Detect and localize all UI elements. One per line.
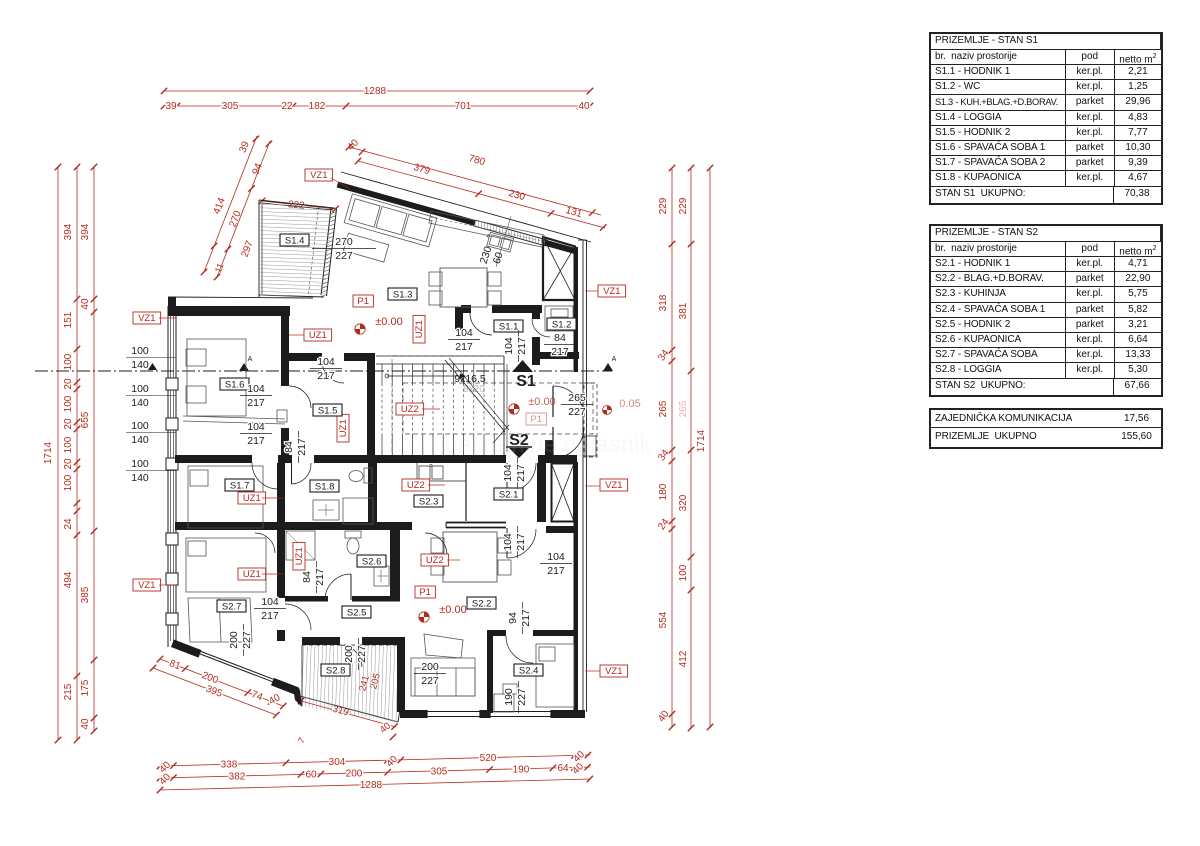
- svg-text:229: 229: [678, 197, 689, 214]
- svg-text:394: 394: [63, 223, 74, 240]
- svg-text:VZ1: VZ1: [603, 286, 620, 297]
- svg-text:217: 217: [516, 337, 528, 355]
- svg-text:S2.7: S2.7: [222, 602, 242, 613]
- svg-text:7: 7: [296, 736, 307, 745]
- svg-text:104: 104: [502, 533, 514, 551]
- svg-text:S2.5: S2.5: [347, 608, 367, 619]
- svg-text:100: 100: [63, 395, 74, 412]
- svg-text:217: 217: [455, 341, 473, 353]
- svg-text:S1.7: S1.7: [230, 481, 250, 492]
- svg-text:100: 100: [131, 383, 149, 395]
- svg-text:227: 227: [516, 688, 528, 706]
- svg-text:229: 229: [658, 197, 669, 214]
- svg-text:40: 40: [578, 101, 590, 112]
- svg-text:S1: S1: [516, 373, 536, 390]
- svg-text:655: 655: [80, 411, 91, 428]
- svg-text:39: 39: [165, 101, 177, 112]
- svg-text:UZ1: UZ1: [414, 320, 425, 338]
- svg-text:554: 554: [658, 611, 669, 628]
- svg-text:217: 217: [247, 435, 265, 447]
- svg-text:0.05: 0.05: [619, 398, 640, 410]
- svg-text:20: 20: [63, 378, 74, 390]
- svg-text:UZ2: UZ2: [426, 555, 444, 566]
- svg-text:140: 140: [131, 434, 149, 446]
- svg-text:217: 217: [515, 533, 527, 551]
- svg-text:338: 338: [221, 760, 238, 771]
- svg-text:100: 100: [131, 345, 149, 357]
- svg-text:395: 395: [204, 684, 224, 700]
- svg-text:S2.4: S2.4: [519, 666, 539, 677]
- svg-text:104: 104: [247, 421, 265, 433]
- svg-text:40: 40: [656, 708, 672, 724]
- svg-text:217: 217: [296, 438, 308, 456]
- svg-text:S1.8: S1.8: [315, 482, 335, 493]
- svg-text:100: 100: [63, 474, 74, 491]
- svg-text:780: 780: [467, 153, 486, 168]
- svg-text:nekretnine oglasnik: nekretnine oglasnik: [445, 431, 653, 458]
- svg-text:UZ1: UZ1: [309, 330, 327, 341]
- svg-text:VZ1: VZ1: [605, 480, 622, 491]
- svg-text:84: 84: [554, 332, 566, 344]
- svg-text:40: 40: [570, 761, 586, 777]
- svg-text:100: 100: [131, 458, 149, 470]
- svg-text:381: 381: [678, 302, 689, 319]
- svg-text:180: 180: [658, 483, 669, 500]
- svg-text:305: 305: [431, 766, 448, 777]
- svg-text:100: 100: [63, 436, 74, 453]
- svg-text:305: 305: [222, 101, 239, 112]
- svg-text:S2.1: S2.1: [499, 490, 519, 501]
- svg-text:217: 217: [314, 568, 326, 586]
- svg-text:VZ1: VZ1: [310, 170, 327, 181]
- svg-text:104: 104: [317, 356, 335, 368]
- svg-text:104: 104: [455, 327, 473, 339]
- svg-text:34: 34: [656, 347, 672, 363]
- svg-text:22: 22: [281, 101, 293, 112]
- svg-text:382: 382: [229, 772, 246, 783]
- svg-text:S2.8: S2.8: [326, 666, 346, 677]
- svg-text:8x20: 8x20: [463, 384, 485, 395]
- svg-text:VZ1: VZ1: [138, 580, 155, 591]
- svg-text:227: 227: [568, 406, 586, 418]
- svg-text:227: 227: [335, 250, 353, 262]
- svg-text:140: 140: [131, 359, 149, 371]
- svg-text:94: 94: [251, 162, 265, 177]
- svg-text:100: 100: [131, 420, 149, 432]
- svg-text:104: 104: [503, 337, 515, 355]
- svg-text:379: 379: [412, 162, 431, 177]
- svg-text:215: 215: [63, 683, 74, 700]
- svg-text:227: 227: [241, 631, 253, 649]
- svg-text:140: 140: [131, 472, 149, 484]
- svg-text:265: 265: [568, 392, 586, 404]
- svg-text:217: 217: [551, 346, 569, 358]
- svg-text:39: 39: [238, 140, 252, 155]
- svg-text:S2.3: S2.3: [419, 497, 439, 508]
- svg-text:20: 20: [63, 458, 74, 470]
- svg-text:84: 84: [301, 571, 313, 583]
- svg-text:24: 24: [63, 518, 74, 530]
- svg-text:217: 217: [317, 370, 335, 382]
- svg-text:UZ2: UZ2: [401, 404, 419, 415]
- svg-text:270: 270: [228, 209, 244, 229]
- svg-text:S1.4: S1.4: [285, 236, 305, 247]
- svg-text:217: 217: [247, 397, 265, 409]
- svg-text:217: 217: [520, 609, 532, 627]
- svg-text:140: 140: [131, 397, 149, 409]
- svg-text:±0.00: ±0.00: [528, 396, 555, 408]
- svg-text:81: 81: [168, 658, 183, 672]
- svg-text:VZ1: VZ1: [605, 666, 622, 677]
- svg-text:412: 412: [678, 650, 689, 667]
- svg-text:24: 24: [656, 516, 672, 532]
- svg-text:UZ1: UZ1: [243, 493, 261, 504]
- svg-text:1714: 1714: [43, 441, 54, 464]
- svg-text:UZ1: UZ1: [294, 547, 305, 565]
- svg-text:P1: P1: [357, 296, 369, 307]
- svg-text:P1: P1: [530, 414, 542, 425]
- svg-text:S1.1: S1.1: [499, 322, 519, 333]
- svg-text:S1.5: S1.5: [318, 406, 338, 417]
- svg-text:318: 318: [658, 294, 669, 311]
- svg-text:200: 200: [228, 631, 240, 649]
- svg-text:200: 200: [346, 769, 363, 780]
- svg-text:494: 494: [63, 571, 74, 588]
- svg-text:60: 60: [305, 770, 317, 781]
- svg-text:40: 40: [384, 754, 400, 770]
- svg-text:S1.3: S1.3: [393, 290, 413, 301]
- svg-text:A: A: [248, 356, 253, 363]
- svg-text:40: 40: [157, 771, 173, 787]
- svg-text:320: 320: [678, 494, 689, 511]
- svg-text:394: 394: [80, 223, 91, 240]
- svg-text:701: 701: [455, 101, 472, 112]
- svg-text:151: 151: [63, 311, 74, 328]
- svg-text:60: 60: [491, 251, 506, 266]
- svg-text:VZ1: VZ1: [138, 313, 155, 324]
- svg-text:P1: P1: [419, 587, 431, 598]
- svg-text:94: 94: [507, 612, 519, 624]
- svg-text:11: 11: [213, 262, 226, 274]
- svg-text:270: 270: [335, 236, 353, 248]
- svg-text:40: 40: [80, 298, 91, 310]
- svg-text:200: 200: [421, 661, 439, 673]
- svg-text:1714: 1714: [696, 429, 707, 452]
- svg-text:319: 319: [331, 704, 350, 719]
- svg-text:297: 297: [240, 239, 256, 259]
- svg-text:1288: 1288: [364, 86, 387, 97]
- svg-text:S1.2: S1.2: [552, 320, 572, 331]
- svg-text:1288: 1288: [360, 780, 383, 791]
- svg-text:200: 200: [343, 645, 355, 663]
- svg-text:±0.00: ±0.00: [375, 316, 402, 328]
- svg-text:40: 40: [80, 718, 91, 730]
- svg-text:104: 104: [261, 596, 279, 608]
- svg-text:100: 100: [63, 353, 74, 370]
- svg-text:±0.00: ±0.00: [439, 604, 466, 616]
- svg-text:217: 217: [547, 565, 565, 577]
- svg-text:190: 190: [503, 688, 515, 706]
- svg-text:304: 304: [329, 757, 346, 768]
- svg-text:UZ2: UZ2: [407, 480, 425, 491]
- svg-text:A: A: [612, 356, 617, 363]
- svg-text:217: 217: [261, 610, 279, 622]
- svg-text:385: 385: [80, 586, 91, 603]
- svg-text:520: 520: [480, 753, 497, 764]
- svg-text:UZ1: UZ1: [338, 419, 349, 437]
- svg-text:20: 20: [63, 418, 74, 430]
- svg-text:S2.6: S2.6: [362, 557, 382, 568]
- svg-text:230: 230: [507, 188, 526, 203]
- svg-text:227: 227: [356, 645, 368, 663]
- svg-text:40: 40: [345, 137, 361, 153]
- svg-text:64: 64: [557, 763, 569, 774]
- svg-text:104: 104: [502, 464, 514, 482]
- svg-text:104: 104: [247, 383, 265, 395]
- svg-text:S2.2: S2.2: [472, 599, 492, 610]
- svg-text:UZ1: UZ1: [243, 569, 261, 580]
- svg-text:S1.6: S1.6: [225, 380, 245, 391]
- svg-text:104: 104: [547, 551, 565, 563]
- svg-text:265: 265: [658, 400, 669, 417]
- svg-text:265: 265: [678, 400, 689, 417]
- svg-text:84: 84: [283, 441, 295, 453]
- svg-text:34: 34: [656, 447, 672, 463]
- svg-text:414: 414: [212, 196, 228, 216]
- svg-text:227: 227: [421, 675, 439, 687]
- svg-text:175: 175: [80, 679, 91, 696]
- svg-text:182: 182: [309, 101, 326, 112]
- svg-text:74: 74: [250, 689, 265, 703]
- svg-text:100: 100: [678, 564, 689, 581]
- svg-text:190: 190: [513, 764, 530, 775]
- svg-text:217: 217: [515, 464, 527, 482]
